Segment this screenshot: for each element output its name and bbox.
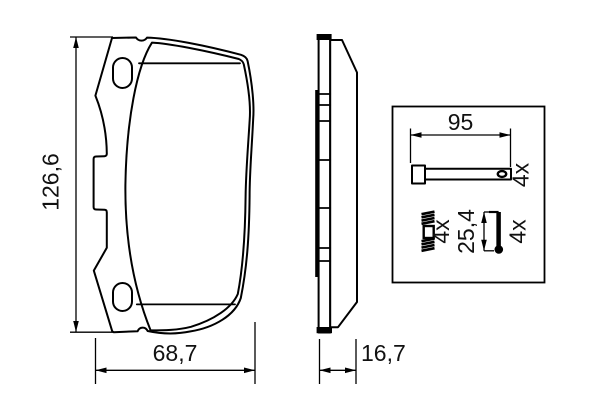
arrow-left-icon — [320, 368, 331, 374]
clip-height-label: 25,4 — [453, 209, 479, 254]
arrow-right-icon — [244, 368, 255, 374]
pin-length-label: 95 — [448, 109, 474, 135]
spring-quantity-label: 4x — [428, 219, 454, 244]
arrow-down-icon — [73, 321, 79, 332]
pin-head — [412, 166, 425, 184]
shim-top-clip — [317, 34, 332, 40]
side-backplate — [319, 37, 331, 333]
hardware-kit: 95 4x 4x — [393, 107, 545, 283]
brake-pad-technical-drawing: 126,6 68,7 — [0, 0, 600, 400]
width-dimension-label: 68,7 — [153, 340, 198, 366]
thickness-dimension-label: 16,7 — [361, 340, 406, 366]
side-shim-strip — [315, 90, 319, 277]
friction-pad-outline — [125, 43, 250, 331]
mounting-hole-bottom — [113, 283, 132, 311]
side-friction-profile — [330, 40, 357, 327]
technical-drawing-page: 126,6 68,7 — [0, 0, 600, 400]
shim-bottom-clip — [317, 327, 332, 333]
clip-ball-end — [495, 245, 504, 254]
pin-hole — [498, 171, 506, 177]
thickness-dimension: 16,7 — [320, 339, 406, 384]
front-view — [94, 38, 254, 334]
arrow-left-icon — [96, 368, 107, 374]
side-view — [315, 34, 357, 333]
arrow-up-icon — [73, 37, 79, 48]
clip-quantity-label: 4x — [505, 219, 531, 244]
mounting-hole-top — [113, 58, 132, 88]
height-dimension-label: 126,6 — [38, 153, 64, 211]
pin-quantity-label: 4x — [508, 162, 534, 187]
arrow-right-icon — [345, 368, 356, 374]
